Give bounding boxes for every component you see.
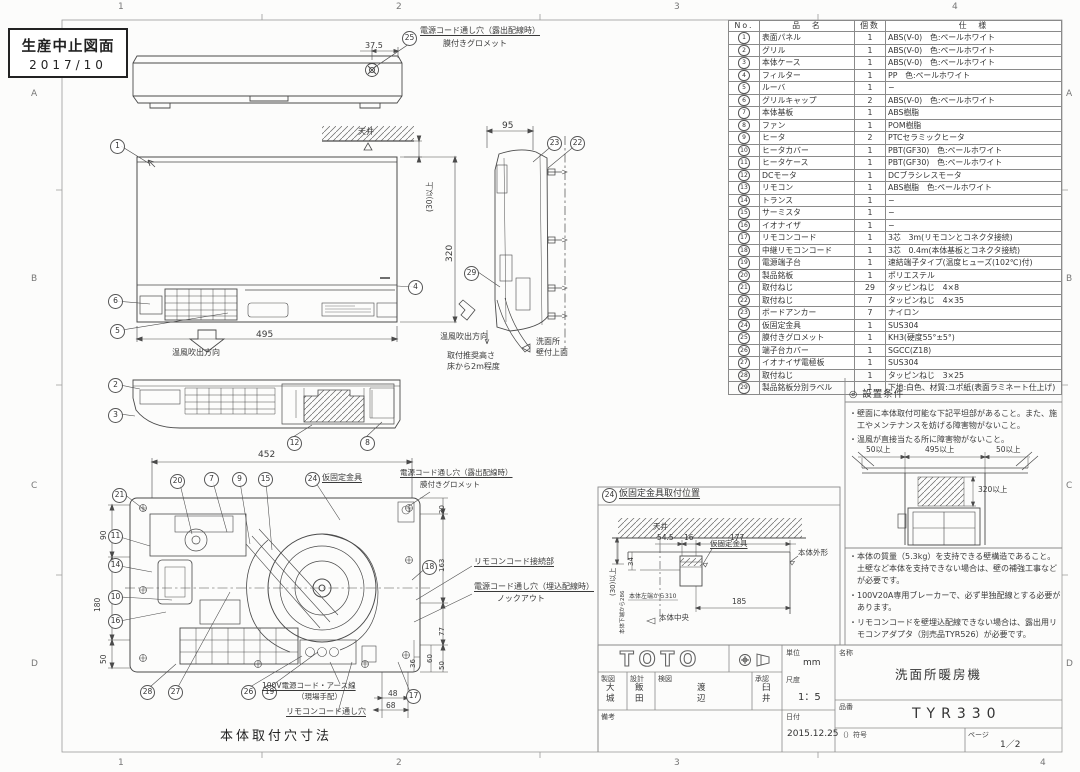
zone-left-c: C (31, 481, 37, 491)
part-number-value: TYR330 (912, 706, 1002, 722)
zone-bottom-4: 4 (1040, 758, 1046, 768)
part-name: ルーバ (760, 82, 855, 95)
part-number-balloon: 21 (738, 282, 750, 294)
part-spec: SUS304 (886, 319, 1062, 332)
part-spec: 3芯 0.4m(本体基板とコネクタ接続) (886, 244, 1062, 257)
part-qty: 1 (855, 119, 886, 132)
part-spec: ポリエステル (886, 269, 1062, 282)
table-row: 17 リモコンコード 1 3芯 3m(リモコンとコネクタ接続) (729, 232, 1062, 245)
part-name: リモコン (760, 182, 855, 195)
dim-90: 90 (100, 530, 108, 540)
dim-60: 60 (427, 654, 435, 663)
clearance-right-dim: 50以上 (996, 446, 1021, 454)
dim-68: 68 (386, 702, 396, 710)
table-row: 24 仮固定金具 1 SUS304 (729, 319, 1062, 332)
zone-left-a: A (31, 89, 37, 99)
table-row: 4 フィルター 1 PP 色:ペールホワイト (729, 69, 1062, 82)
gap-dim: (30)以上 (426, 182, 434, 212)
warm-air-flow-label-side: 温風吹出方向 (440, 333, 488, 342)
part-number-balloon: 17 (738, 232, 750, 244)
designer-name: 飯 田 (635, 683, 644, 704)
page-label: ページ (968, 730, 989, 740)
warm-air-flow-label: 温風吹出方向 (172, 349, 220, 358)
balloon-10: 10 (108, 590, 123, 605)
table-row: 28 取付ねじ 1 タッピンねじ 3×25 (729, 369, 1062, 382)
part-qty: 1 (855, 44, 886, 57)
col-qty: 個数 (855, 21, 886, 32)
washroom-label: 洗面所 (536, 338, 560, 347)
balloon-29: 29 (464, 266, 479, 281)
bracket-panel-art (598, 487, 840, 645)
toto-logo: TOTO (620, 647, 701, 671)
part-qty: 1 (855, 232, 886, 245)
part-spec: − (886, 82, 1062, 95)
part-name: ヒータケース (760, 157, 855, 170)
dim-77: 77 (439, 627, 447, 636)
balloon-8: 8 (360, 436, 375, 451)
balloon-3: 3 (108, 408, 123, 423)
unit-label: 単位 (786, 648, 800, 658)
table-row: 2 グリル 1 ABS(V-0) 色:ペールホワイト (729, 44, 1062, 57)
table-row: 19 電源端子台 1 速結端子タイプ(温度ヒューズ(102℃)付) (729, 257, 1062, 270)
zone-top-3: 3 (674, 2, 680, 12)
clearance-center-dim: 495以上 (925, 446, 954, 454)
balloon-21: 21 (112, 488, 127, 503)
gap-dim-2: (30)以上 (610, 568, 618, 596)
dim-54-5: 54.5 (657, 534, 674, 542)
bracket-label-panel: 仮固定金具 (710, 540, 748, 548)
part-name: 表面パネル (760, 32, 855, 45)
part-spec: DCブラシレスモータ (886, 169, 1062, 182)
zone-top-2: 2 (396, 2, 402, 12)
power-hole-exposed-label-2: 電源コード通し穴（露出配線時） (400, 469, 513, 477)
balloon-16: 16 (108, 614, 123, 629)
part-number-balloon: 1 (738, 32, 750, 44)
part-qty: 1 (855, 157, 886, 170)
approver-name: 臼 井 (762, 683, 771, 704)
knockout-label: ノックアウト (497, 595, 545, 604)
balloon-20: 20 (170, 474, 185, 489)
part-spec: ABS(V-0) 色:ペールホワイト (886, 44, 1062, 57)
part-qty: 29 (855, 282, 886, 295)
part-number-balloon: 5 (738, 82, 750, 94)
table-row: 23 ボードアンカー 7 ナイロン (729, 307, 1062, 320)
part-spec: ABS樹脂 (886, 107, 1062, 120)
bottom-view-art (120, 380, 400, 437)
door-diagram-art (852, 452, 1038, 545)
part-spec: タッピンねじ 4×35 (886, 294, 1062, 307)
part-name: イオナイザ電極板 (760, 357, 855, 370)
balloon-18: 18 (422, 560, 437, 575)
part-qty: 1 (855, 82, 886, 95)
part-number-balloon: 3 (738, 57, 750, 69)
discontinued-stamp: 生産中止図面 2017/10 (8, 28, 128, 78)
grommet-label-2: 膜付きグロメット (420, 481, 480, 489)
col-no: No. (729, 21, 760, 32)
balloon-12: 12 (287, 436, 302, 451)
part-spec: SUS304 (886, 357, 1062, 370)
table-row: 25 膜付きグロメット 1 KH3(硬度55°±5°) (729, 332, 1062, 345)
dim-50-right: 50 (439, 661, 447, 670)
drawing-sheet: 1 2 3 4 1 2 3 4 A B C D A B C D 生産中止図面 2… (0, 0, 1080, 772)
part-number-balloon: 2 (738, 45, 750, 57)
part-qty: 1 (855, 369, 886, 382)
part-name: グリル (760, 44, 855, 57)
part-name: DCモータ (760, 169, 855, 182)
table-row: 14 トランス 1 − (729, 194, 1062, 207)
zone-bottom-3: 3 (674, 758, 680, 768)
front-view-art (116, 136, 457, 352)
part-number-balloon: 26 (738, 345, 750, 357)
width-dim-495: 495 (256, 331, 273, 341)
zone-left-b: B (31, 274, 37, 284)
part-spec: タッピンねじ 4×8 (886, 282, 1062, 295)
part-spec: PBT(GF30) 色:ペールホワイト (886, 157, 1062, 170)
part-qty: 1 (855, 269, 886, 282)
part-qty: 1 (855, 357, 886, 370)
part-qty: 1 (855, 32, 886, 45)
dim-16: 16 (684, 534, 694, 542)
part-number-balloon: 13 (738, 182, 750, 194)
part-number-balloon: 4 (738, 70, 750, 82)
page-value: 1／2 (1000, 737, 1020, 750)
part-spec: ABS(V-0) 色:ペールホワイト (886, 94, 1062, 107)
install-conditions-title: ◎ 設置条件 (849, 386, 1059, 400)
zone-bottom-1: 1 (118, 758, 124, 768)
part-name: 本体基板 (760, 107, 855, 120)
part-qty: 1 (855, 332, 886, 345)
part-number-label: 品番 (839, 702, 853, 712)
balloon-17: 17 (406, 689, 421, 704)
part-qty: 1 (855, 144, 886, 157)
from-bottom-dim: 本体下端から286 (620, 591, 626, 635)
checker-name: 渡 辺 (697, 683, 706, 704)
part-number-balloon: 12 (738, 170, 750, 182)
balloon-24-panel: 24 (602, 488, 617, 503)
balloon-25: 25 (402, 31, 417, 46)
part-qty: 7 (855, 307, 886, 320)
condition-bullet: ・壁面に本体取付可能な下記平坦部があること。また、施工やメンテナンスを妨げる障害… (849, 408, 1059, 432)
balloon-23: 23 (547, 136, 562, 151)
dim-37-5: 37.5 (365, 42, 383, 51)
part-qty: 1 (855, 169, 886, 182)
table-row: 21 取付ねじ 29 タッピンねじ 4×8 (729, 282, 1062, 295)
part-qty: 1 (855, 69, 886, 82)
part-number-balloon: 29 (738, 382, 750, 394)
height-dim-320: 320 (446, 245, 456, 262)
part-name: 取付ねじ (760, 369, 855, 382)
parts-table-header: No. 品 名 個数 仕 様 (729, 21, 1062, 32)
dim-36: 36 (410, 659, 418, 668)
condition-bullet: ・100V20A専用ブレーカーで、必ず単独配線とする必要があります。 (849, 590, 1061, 614)
zone-right-b: B (1066, 274, 1072, 284)
part-number-balloon: 23 (738, 307, 750, 319)
part-name: 端子台カバー (760, 344, 855, 357)
ceiling-label-2: 天井 (653, 523, 668, 531)
power-hole-embedded-label: 電源コード通し穴（埋込配線時） (474, 583, 594, 592)
wall-mount-face-label: 壁付上面 (536, 349, 568, 358)
zone-right-c: C (1066, 481, 1072, 491)
table-row: 6 グリルキャップ 2 ABS(V-0) 色:ペールホワイト (729, 94, 1062, 107)
balloon-2: 2 (108, 378, 123, 393)
part-number-balloon: 19 (738, 257, 750, 269)
table-row: 20 製品銘板 1 ポリエステル (729, 269, 1062, 282)
install-conditions-notes: ・本体の質量（5.3kg）を支持できる壁構造であること。土壁など本体を支持できな… (849, 551, 1061, 644)
part-name: グリルキャップ (760, 94, 855, 107)
depth-dim-95: 95 (502, 122, 513, 132)
part-name: サーミスタ (760, 207, 855, 220)
part-spec: POM樹脂 (886, 119, 1062, 132)
table-row: 1 表面パネル 1 ABS(V-0) 色:ペールホワイト (729, 32, 1062, 45)
date-value: 2015.12.25 (787, 729, 839, 739)
part-spec: − (886, 194, 1062, 207)
grommet-label: 膜付きグロメット (443, 40, 507, 49)
balloon-1: 1 (110, 139, 125, 154)
part-qty: 1 (855, 219, 886, 232)
zone-top-1: 1 (118, 2, 124, 12)
part-number-balloon: 8 (738, 120, 750, 132)
part-number-balloon: 11 (738, 157, 750, 169)
scale-label: 尺度 (786, 675, 800, 685)
part-number-balloon: 9 (738, 132, 750, 144)
part-number-balloon: 28 (738, 370, 750, 382)
part-qty: 1 (855, 107, 886, 120)
zone-top-4: 4 (952, 2, 958, 12)
part-spec: SGCC(Z18) (886, 344, 1062, 357)
part-name: 製品銘板 (760, 269, 855, 282)
part-number-balloon: 25 (738, 332, 750, 344)
part-qty: 2 (855, 132, 886, 145)
body-outline-label: 本体外形 (798, 549, 828, 557)
table-row: 3 本体ケース 1 ABS(V-0) 色:ペールホワイト (729, 57, 1062, 70)
width-dim-452: 452 (258, 451, 275, 461)
balloon-27: 27 (168, 685, 183, 700)
remote-cord-connection-label: リモコンコード接続部 (474, 558, 554, 567)
dim-180: 180 (94, 598, 102, 612)
table-row: 15 サーミスタ 1 − (729, 207, 1062, 220)
dim-185: 185 (732, 598, 746, 606)
part-number-balloon: 18 (738, 245, 750, 257)
part-name: リモコンコード (760, 232, 855, 245)
checker-label: 検図 (658, 674, 672, 684)
part-qty: 1 (855, 194, 886, 207)
power-cord-label: 100V電源コード・アース線 (262, 682, 356, 690)
part-name: ヒータ (760, 132, 855, 145)
part-spec: PP 色:ペールホワイト (886, 69, 1062, 82)
part-spec: ABS(V-0) 色:ペールホワイト (886, 32, 1062, 45)
scale-value: 1：5 (798, 688, 821, 703)
part-spec: タッピンねじ 3×25 (886, 369, 1062, 382)
part-name: ボードアンカー (760, 307, 855, 320)
zone-right-a: A (1066, 89, 1072, 99)
part-name: イオナイザ (760, 219, 855, 232)
part-qty: 1 (855, 344, 886, 357)
table-row: 8 ファン 1 POM樹脂 (729, 119, 1062, 132)
install-conditions: ◎ 設置条件 ・壁面に本体取付可能な下記平坦部があること。また、施工やメンテナン… (849, 386, 1059, 446)
table-row: 27 イオナイザ電極板 1 SUS304 (729, 357, 1062, 370)
zone-left-d: D (31, 659, 38, 669)
table-row: 9 ヒータ 2 PTCセラミックヒータ (729, 132, 1062, 145)
table-row: 12 DCモータ 1 DCブラシレスモータ (729, 169, 1062, 182)
dim-34: 34 (628, 557, 636, 566)
balloon-24: 24 (305, 472, 320, 487)
side-view-art (459, 126, 577, 352)
remarks-label: 備考 (601, 712, 615, 722)
clearance-height-dim: 320以上 (978, 486, 1007, 494)
part-spec: ABS樹脂 色:ペールホワイト (886, 182, 1062, 195)
part-number-balloon: 14 (738, 195, 750, 207)
part-name: ヒータカバー (760, 144, 855, 157)
part-spec: ナイロン (886, 307, 1062, 320)
balloon-5: 5 (110, 324, 125, 339)
part-spec: PTCセラミックヒータ (886, 132, 1062, 145)
parts-table: No. 品 名 個数 仕 様 1 表面パネル 1 ABS(V-0) 色:ペールホ… (728, 20, 1062, 369)
clearance-left-dim: 50以上 (866, 446, 891, 454)
power-hole-exposed-label: 電源コード通し穴（露出配線時） (420, 27, 540, 36)
ceiling-label: 天井 (358, 128, 374, 137)
from-left-dim: 本体左端から310 (629, 594, 676, 601)
remote-cord-hole-label: リモコンコード通し穴 (286, 708, 366, 717)
table-row: 7 本体基板 1 ABS樹脂 (729, 107, 1062, 120)
col-spec: 仕 様 (886, 21, 1062, 32)
stamp-date: 2017/10 (29, 58, 107, 72)
part-name: 取付ねじ (760, 282, 855, 295)
bracket-label-top: 仮固定金具 (322, 474, 362, 483)
part-name: フィルター (760, 69, 855, 82)
part-name: 取付ねじ (760, 294, 855, 307)
part-qty: 1 (855, 182, 886, 195)
table-row: 5 ルーバ 1 − (729, 82, 1062, 95)
zone-bottom-2: 2 (396, 758, 402, 768)
name-label: 名称 (839, 648, 853, 658)
part-qty: 1 (855, 244, 886, 257)
table-row: 16 イオナイザ 1 − (729, 219, 1062, 232)
part-number-balloon: 16 (738, 220, 750, 232)
unit-value: mm (803, 658, 821, 668)
part-qty: 7 (855, 294, 886, 307)
table-row: 11 ヒータケース 1 PBT(GF30) 色:ペールホワイト (729, 157, 1062, 170)
part-name: 膜付きグロメット (760, 332, 855, 345)
table-row: 26 端子台カバー 1 SGCC(Z18) (729, 344, 1062, 357)
table-row: 13 リモコン 1 ABS樹脂 色:ペールホワイト (729, 182, 1062, 195)
table-row: 18 中継リモコンコード 1 3芯 0.4m(本体基板とコネクタ接続) (729, 244, 1062, 257)
dim-50-left: 50 (100, 654, 108, 664)
part-name: 中継リモコンコード (760, 244, 855, 257)
plan-view-art (133, 44, 409, 108)
symbol-label: （）符号 (839, 730, 867, 740)
table-row: 10 ヒータカバー 1 PBT(GF30) 色:ペールホワイト (729, 144, 1062, 157)
body-center-label: 本体中央 (659, 614, 689, 622)
site-supply-label: （現場手配） (297, 693, 342, 701)
part-qty: 1 (855, 319, 886, 332)
condition-bullet: ・リモコンコードを壁埋込配線できない場合は、露出用リモコンアダプタ（別売品TYR… (849, 617, 1061, 641)
condition-bullet: ・本体の質量（5.3kg）を支持できる壁構造であること。土壁など本体を支持できな… (849, 551, 1061, 587)
zone-right-d: D (1066, 659, 1073, 669)
part-spec: KH3(硬度55°±5°) (886, 332, 1062, 345)
balloon-6: 6 (108, 294, 123, 309)
part-number-balloon: 10 (738, 145, 750, 157)
part-number-balloon: 7 (738, 107, 750, 119)
balloon-22: 22 (570, 136, 585, 151)
part-name: 製品銘板分別ラベル (760, 382, 855, 395)
part-qty: 2 (855, 94, 886, 107)
product-name: 洗面所暖房機 (895, 664, 982, 683)
part-name: 仮固定金具 (760, 319, 855, 332)
balloon-9: 9 (232, 472, 247, 487)
part-spec: 速結端子タイプ(温度ヒューズ(102℃)付) (886, 257, 1062, 270)
projection-symbol-icon (740, 654, 770, 666)
part-number-balloon: 6 (738, 95, 750, 107)
internal-view-art (108, 458, 472, 718)
mounting-hole-caption: 本体取付穴寸法 (220, 725, 332, 744)
bracket-panel-title: 仮固定金具取付位置 (619, 490, 700, 500)
date-label: 日付 (786, 712, 800, 722)
part-qty: 1 (855, 57, 886, 70)
part-name: ファン (760, 119, 855, 132)
dim-30: 30 (439, 505, 447, 514)
part-number-balloon: 27 (738, 357, 750, 369)
part-qty: 1 (855, 207, 886, 220)
balloon-4: 4 (408, 280, 423, 295)
part-qty: 1 (855, 257, 886, 270)
part-spec: − (886, 219, 1062, 232)
balloon-15: 15 (258, 472, 273, 487)
part-number-balloon: 24 (738, 320, 750, 332)
balloon-14: 14 (108, 558, 123, 573)
part-name: トランス (760, 194, 855, 207)
balloon-7: 7 (204, 472, 219, 487)
table-row: 22 取付ねじ 7 タッピンねじ 4×35 (729, 294, 1062, 307)
dim-163: 163 (439, 559, 447, 572)
mount-height-note-1: 取付推奨高さ (447, 352, 495, 361)
col-name: 品 名 (760, 21, 855, 32)
dim-48: 48 (388, 690, 398, 698)
balloon-11: 11 (108, 529, 123, 544)
part-number-balloon: 22 (738, 295, 750, 307)
mount-height-note-2: 床から2m程度 (447, 363, 500, 372)
part-number-balloon: 20 (738, 270, 750, 282)
balloon-26: 26 (241, 685, 256, 700)
part-spec: 3芯 3m(リモコンとコネクタ接続) (886, 232, 1062, 245)
part-spec: ABS(V-0) 色:ペールホワイト (886, 57, 1062, 70)
part-number-balloon: 15 (738, 207, 750, 219)
part-spec: PBT(GF30) 色:ペールホワイト (886, 144, 1062, 157)
part-spec: − (886, 207, 1062, 220)
balloon-28: 28 (140, 685, 155, 700)
drafter-name: 大 城 (606, 683, 615, 704)
stamp-text: 生産中止図面 (22, 35, 115, 56)
part-name: 電源端子台 (760, 257, 855, 270)
part-name: 本体ケース (760, 57, 855, 70)
